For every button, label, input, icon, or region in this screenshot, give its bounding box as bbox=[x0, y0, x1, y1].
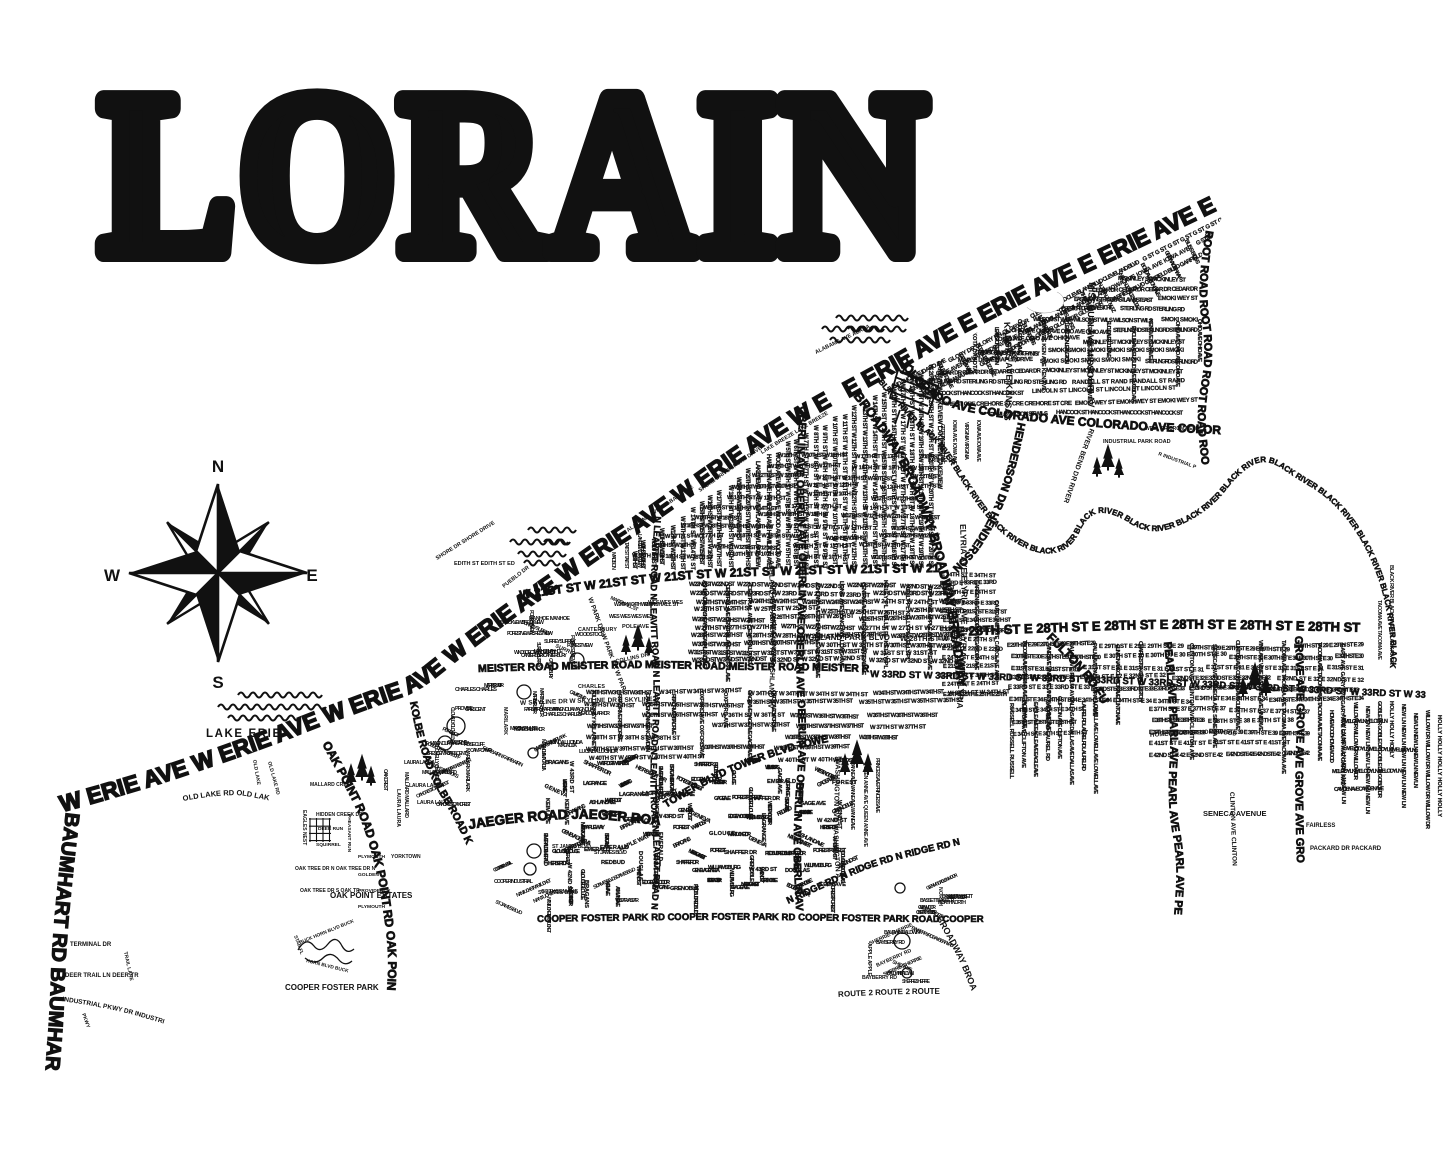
svg-text:RESERVE CT: RESERVE CT bbox=[564, 847, 570, 866]
svg-text:HOMEWOOD HOMEWOOD: HOMEWOOD HOMEWOOD bbox=[1328, 710, 1334, 763]
svg-text:LAURA LAURA: LAURA LAURA bbox=[409, 783, 444, 789]
svg-text:W 17TH ST W 17TH ST: W 17TH ST W 17TH ST bbox=[793, 543, 853, 550]
svg-text:W 12TH ST W 12TH ST: W 12TH ST W 12TH ST bbox=[807, 482, 860, 489]
svg-text:LAURA LAURA: LAURA LAURA bbox=[417, 800, 452, 806]
svg-text:EAGLES NEST: EAGLES NEST bbox=[301, 810, 307, 845]
svg-text:SENECA AVE SENECA AVE SENECA A: SENECA AVE SENECA AVE SENECA AVE bbox=[1211, 644, 1217, 748]
svg-text:ASHLAND AVE: ASHLAND AVE bbox=[798, 810, 813, 816]
svg-text:MARTINS RUN DR: MARTINS RUN DR bbox=[531, 691, 537, 714]
svg-text:KEIM AVE: KEIM AVE bbox=[544, 798, 550, 824]
svg-text:W 43RD ST: W 43RD ST bbox=[657, 814, 684, 820]
svg-text:NORTH: NORTH bbox=[937, 887, 943, 906]
svg-text:E 34TH ST E 34TH ST: E 34TH ST E 34TH ST bbox=[940, 673, 998, 679]
svg-text:LAURA LAURA: LAURA LAURA bbox=[395, 789, 401, 827]
svg-text:ASHLAND AVE ASHLAND AVE ASHLAN: ASHLAND AVE ASHLAND AVE ASHLAND AVE bbox=[701, 580, 707, 668]
svg-text:W ANNE AVE W ANNE AVE W ANNE A: W ANNE AVE W ANNE AVE W ANNE AVE bbox=[849, 760, 855, 830]
svg-text:ST JAMES BLVD: ST JAMES BLVD bbox=[538, 890, 578, 896]
svg-text:LEXINGTON LEXINGTON: LEXINGTON LEXINGTON bbox=[1063, 323, 1069, 364]
svg-text:WESTWOOD DR: WESTWOOD DR bbox=[745, 758, 761, 764]
svg-text:S: S bbox=[212, 673, 223, 692]
svg-text:E 21ST E 21ST E 21ST: E 21ST E 21ST E 21ST bbox=[943, 663, 998, 670]
svg-text:KILLARNEY KILLARNEY: KILLARNEY KILLARNEY bbox=[590, 691, 596, 749]
svg-text:EDGEWOOD DR: EDGEWOOD DR bbox=[707, 878, 723, 884]
svg-text:SHAFFER DR: SHAFFER DR bbox=[676, 860, 700, 866]
svg-text:SHAFFER DR: SHAFFER DR bbox=[748, 796, 781, 802]
svg-text:RUSSELL RUSSELL RUSSELL: RUSSELL RUSSELL RUSSELL bbox=[1008, 703, 1014, 780]
svg-text:LONG AVE LONG AVE LONG AVE: LONG AVE LONG AVE LONG AVE bbox=[838, 581, 844, 668]
svg-text:BRAGANS: BRAGANS bbox=[545, 760, 569, 766]
svg-text:LUCINDA LUCINDA: LUCINDA LUCINDA bbox=[546, 740, 583, 746]
svg-text:EASTLAWN ST EAST EASTLAWN ST E: EASTLAWN ST EAST EASTLAWN ST EAST bbox=[1074, 297, 1153, 304]
svg-text:BRIDGE DR: BRIDGE DR bbox=[928, 458, 956, 464]
svg-text:KELLY PL KELLY PL KELLY PL: KELLY PL KELLY PL KELLY PL bbox=[882, 580, 888, 669]
svg-text:W 10TH ST W 10TH ST: W 10TH ST W 10TH ST bbox=[891, 526, 937, 533]
svg-text:LAURA LAURA: LAURA LAURA bbox=[404, 760, 435, 766]
svg-text:CHARLES: CHARLES bbox=[578, 684, 605, 690]
svg-text:LAKE ERIE: LAKE ERIE bbox=[206, 728, 282, 740]
svg-text:BLACK RIVER BLACK RIVER BLACK: BLACK RIVER BLACK RIVER BLACK RIVER bbox=[1388, 565, 1394, 665]
svg-text:MARILARK: MARILARK bbox=[502, 707, 508, 735]
svg-text:W 38TH ST W 38TH ST W 38TH ST: W 38TH ST W 38TH ST W 38TH ST bbox=[785, 735, 851, 741]
svg-text:TACOMA AVE TACOMA AVE TACOMA A: TACOMA AVE TACOMA AVE TACOMA AVE TACOMA … bbox=[1316, 642, 1322, 761]
svg-text:E 42ND ST E 42 E 42ND ST E 42: E 42ND ST E 42 E 42ND ST E 42 bbox=[1149, 753, 1224, 759]
svg-text:OAK TREE DR S OAK TR: OAK TREE DR S OAK TR bbox=[300, 888, 360, 894]
svg-text:W 12TH ST W 12TH ST W 12TH ST: W 12TH ST W 12TH ST W 12TH ST bbox=[879, 533, 941, 540]
svg-text:FOREST FOREST: FOREST FOREST bbox=[829, 883, 835, 913]
svg-text:NEW LN NEW LN NEW LN NEW LN NE: NEW LN NEW LN NEW LN NEW LN NEW LN bbox=[1400, 704, 1406, 808]
svg-text:E 24TH ST E 24TH ST: E 24TH ST E 24TH ST bbox=[942, 655, 999, 662]
svg-text:WES WES WES WES: WES WES WES WES bbox=[609, 614, 654, 620]
svg-text:VASSAR VASSAR: VASSAR VASSAR bbox=[615, 898, 639, 904]
svg-text:TAIT ST TAIT ST: TAIT ST TAIT ST bbox=[623, 542, 629, 570]
svg-text:SHERRIE SHERRIE: SHERRIE SHERRIE bbox=[902, 979, 931, 985]
svg-text:CLIFTON AVE CLIFTON AVE: CLIFTON AVE CLIFTON AVE bbox=[1056, 696, 1062, 759]
svg-text:W 18TH ST W 18TH ST: W 18TH ST W 18TH ST bbox=[694, 515, 741, 522]
svg-text:W 12TH ST W 12TH ST: W 12TH ST W 12TH ST bbox=[752, 473, 805, 479]
svg-text:LUCINDA LUCINDA: LUCINDA LUCINDA bbox=[579, 749, 618, 755]
svg-text:W 10TH ST W 10TH ST: W 10TH ST W 10TH ST bbox=[793, 554, 851, 561]
svg-text:APPLE APPLE: APPLE APPLE bbox=[866, 943, 872, 977]
svg-text:E 33RD ST E 33 E 33RD ST E 33: E 33RD ST E 33 E 33RD ST E 33 bbox=[1189, 685, 1258, 692]
svg-text:W 17TH ST W 17TH ST W 17TH ST: W 17TH ST W 17TH ST W 17TH ST bbox=[769, 463, 842, 470]
svg-text:W 30TH ST W 30TH ST W 30TH ST: W 30TH ST W 30TH ST W 30TH ST bbox=[744, 639, 818, 647]
svg-text:MARILARK MARILARK: MARILARK MARILARK bbox=[464, 748, 470, 792]
svg-text:MEADOWLARK DR: MEADOWLARK DR bbox=[514, 727, 545, 733]
svg-text:SENECA AVENUE: SENECA AVENUE bbox=[1203, 809, 1266, 818]
svg-text:VINE AVE VINE AVE VINE AVE VIN: VINE AVE VINE AVE VINE AVE VINE AVE bbox=[1257, 640, 1263, 731]
svg-text:W 43RD ST: W 43RD ST bbox=[568, 761, 574, 793]
svg-text:PROVIDENCE: PROVIDENCE bbox=[358, 888, 391, 894]
svg-text:SQUIRREL: SQUIRREL bbox=[316, 842, 341, 848]
svg-text:GRENOBLE: GRENOBLE bbox=[761, 878, 778, 884]
svg-text:FORESTVIEW: FORESTVIEW bbox=[567, 643, 594, 649]
svg-text:MAPLE WAY: MAPLE WAY bbox=[582, 825, 605, 831]
svg-text:W 17TH ST W 17TH ST: W 17TH ST W 17TH ST bbox=[785, 504, 843, 510]
svg-text:W 38TH ST W 38TH ST: W 38TH ST W 38TH ST bbox=[859, 735, 898, 741]
svg-text:CENTRAL AVE CENTRAL AVE: CENTRAL AVE CENTRAL AVE bbox=[746, 585, 752, 663]
svg-text:IOWA AVE IOWA AVE: IOWA AVE IOWA AVE bbox=[975, 420, 981, 463]
svg-text:HOLLY HOLLY HOLLY HOLLY HOLLY: HOLLY HOLLY HOLLY HOLLY HOLLY bbox=[1436, 715, 1442, 817]
svg-text:CHARLESTON CHARLESTON: CHARLESTON CHARLESTON bbox=[1137, 641, 1143, 702]
svg-text:TERMINAL DR: TERMINAL DR bbox=[70, 942, 112, 948]
svg-text:INDUSTRIAL PARK ROAD: INDUSTRIAL PARK ROAD bbox=[1103, 439, 1171, 445]
svg-text:POLE AVE: POLE AVE bbox=[622, 624, 650, 630]
svg-text:REDBUD: REDBUD bbox=[712, 762, 718, 778]
svg-text:KEN AVE KEN AVE: KEN AVE KEN AVE bbox=[1147, 319, 1153, 359]
svg-text:E 32ND ST E 32 E 32ND ST E 32: E 32ND ST E 32 E 32ND ST E 32 E 32ND ST … bbox=[1172, 675, 1272, 682]
svg-text:OAKCREST: OAKCREST bbox=[382, 769, 388, 792]
svg-text:ST JAMES BLVD: ST JAMES BLVD bbox=[552, 844, 591, 850]
svg-text:E 41ST ST E 41ST ST: E 41ST ST E 41ST ST bbox=[1149, 741, 1206, 747]
svg-text:OHIO AVE OHIO AVE: OHIO AVE OHIO AVE bbox=[1016, 319, 1022, 354]
svg-text:GOLDEN: GOLDEN bbox=[358, 872, 379, 878]
svg-text:E: E bbox=[306, 566, 317, 585]
svg-text:W 10TH ST W 10TH ST: W 10TH ST W 10TH ST bbox=[807, 491, 859, 498]
svg-text:STERLING RD STERLING RD STERLI: STERLING RD STERLING RD STERLING RD bbox=[1113, 328, 1199, 334]
svg-text:CANTERBURY: CANTERBURY bbox=[547, 658, 553, 679]
svg-text:FAIRLESS: FAIRLESS bbox=[1306, 823, 1335, 829]
svg-text:E 24TH ST E 24TH ST: E 24TH ST E 24TH ST bbox=[943, 590, 996, 596]
svg-text:ST JAMES BLVD: ST JAMES BLVD bbox=[594, 850, 627, 856]
svg-text:W 43RD ST: W 43RD ST bbox=[605, 798, 622, 804]
svg-text:E 42ND ST E 42 E 42ND ST E 42: E 42ND ST E 42 E 42ND ST E 42 bbox=[1226, 752, 1282, 758]
svg-text:LEXINGTON LEXINGTON: LEXINGTON LEXINGTON bbox=[993, 327, 999, 365]
svg-text:W 10TH ST W 10TH ST W 10TH ST: W 10TH ST W 10TH ST W 10TH ST bbox=[778, 453, 849, 459]
svg-text:TACOMA AVE TACOMA AVE TACOMA A: TACOMA AVE TACOMA AVE TACOMA AVE TACOMA … bbox=[1280, 640, 1286, 774]
svg-text:YORKTOWN: YORKTOWN bbox=[391, 854, 421, 860]
svg-text:MALLARD MALLARD: MALLARD MALLARD bbox=[422, 770, 457, 776]
svg-text:REDBUD REDBUD: REDBUD REDBUD bbox=[692, 884, 698, 914]
svg-text:W 12TH ST W 12TH ST W 12TH ST: W 12TH ST W 12TH ST W 12TH ST bbox=[841, 513, 910, 520]
svg-text:W 18TH ST W 18TH ST W 18TH ST: W 18TH ST W 18TH ST W 18TH ST bbox=[758, 512, 830, 518]
svg-text:LOWELL AVE LOWELL AVE LOWELL A: LOWELL AVE LOWELL AVE LOWELL AVE bbox=[1092, 701, 1098, 794]
svg-text:OHIO AVE OHIO AVE: OHIO AVE OHIO AVE bbox=[1196, 319, 1202, 362]
svg-text:W 18TH ST W 18TH ST: W 18TH ST W 18TH ST bbox=[859, 542, 911, 549]
svg-text:PHEASANT RUN: PHEASANT RUN bbox=[346, 814, 352, 853]
svg-text:RITA DRIVE RITA DRIVE: RITA DRIVE RITA DRIVE bbox=[670, 694, 676, 735]
svg-text:WELL DR CROMWELL: WELL DR CROMWELL bbox=[1145, 426, 1199, 432]
svg-text:W 12TH ST W 12TH ST: W 12TH ST W 12TH ST bbox=[871, 496, 918, 502]
svg-text:LAGRANGE: LAGRANGE bbox=[583, 781, 607, 787]
svg-text:MALLARD MALLARD: MALLARD MALLARD bbox=[403, 772, 409, 818]
svg-text:W 30TH ST W 30TH ST: W 30TH ST W 30TH ST bbox=[692, 641, 741, 648]
svg-text:MELODY LN MELODY LN: MELODY LN MELODY LN bbox=[1344, 719, 1388, 725]
svg-text:PRINCESS AVE PRINCESS AVE: PRINCESS AVE PRINCESS AVE bbox=[874, 758, 880, 813]
svg-text:CHARLES CHARLES: CHARLES CHARLES bbox=[543, 712, 582, 718]
svg-text:WILLIAMSBURG: WILLIAMSBURG bbox=[708, 865, 741, 871]
svg-text:E 33RD E 33RD E 33RD: E 33RD E 33RD E 33RD bbox=[942, 600, 999, 607]
svg-text:W 37TH ST W 37TH ST: W 37TH ST W 37TH ST bbox=[870, 724, 926, 731]
svg-text:ASHLAND AVE ASHLAND AVE ASHLAN: ASHLAND AVE ASHLAND AVE ASHLAND AVE bbox=[814, 582, 820, 678]
svg-text:EUCLID AVE EUCLID AVE: EUCLID AVE EUCLID AVE bbox=[1105, 321, 1111, 358]
svg-text:GLOUCE: GLOUCE bbox=[730, 770, 736, 785]
svg-text:PALM AVE PALM AVE: PALM AVE PALM AVE bbox=[1068, 642, 1074, 701]
svg-text:E 35TH ST E 35TH ST E 35TH ST: E 35TH ST E 35TH ST E 35TH ST bbox=[1012, 720, 1078, 726]
svg-text:MAGNOLIA MAGNOLIA: MAGNOLIA MAGNOLIA bbox=[430, 741, 470, 747]
svg-text:WILLIAMSBURG: WILLIAMSBURG bbox=[728, 869, 734, 897]
svg-text:E 32ND ST E 32 E 32ND ST E 32: E 32ND ST E 32 E 32ND ST E 32 bbox=[1009, 675, 1076, 681]
svg-text:LAGRANGE: LAGRANGE bbox=[784, 778, 790, 797]
svg-text:W 18TH ST W 18TH ST W 18TH ST: W 18TH ST W 18TH ST W 18TH ST bbox=[852, 465, 941, 472]
svg-text:CLINTON AVE CLINTON AVE CLINTO: CLINTON AVE CLINTON AVE CLINTON AVE bbox=[1114, 644, 1120, 725]
svg-text:GAGE AVE GAGE AVE GAGE AVE: GAGE AVE GAGE AVE GAGE AVE bbox=[746, 690, 752, 757]
svg-text:MARSHALL ST: MARSHALL ST bbox=[644, 602, 680, 608]
svg-text:HIDDEN CREEK DR: HIDDEN CREEK DR bbox=[316, 812, 363, 818]
svg-text:EMERALD: EMERALD bbox=[767, 779, 796, 785]
svg-text:LAKEVIEW LAKEVIEW: LAKEVIEW LAKEVIEW bbox=[636, 534, 642, 569]
svg-text:W 17TH ST W 17TH ST: W 17TH ST W 17TH ST bbox=[665, 533, 725, 540]
svg-text:OXFORD AVE: OXFORD AVE bbox=[722, 692, 728, 728]
svg-text:HERBERT DR: HERBERT DR bbox=[712, 780, 728, 786]
svg-text:MELODY LN MELODY LN MELODY LN: MELODY LN MELODY LN MELODY LN bbox=[1332, 769, 1402, 775]
svg-text:MARTINS RUN DR: MARTINS RUN DR bbox=[484, 683, 504, 689]
svg-text:MADISON: MADISON bbox=[610, 552, 616, 570]
svg-text:GAGE AVE: GAGE AVE bbox=[800, 801, 826, 807]
svg-text:CRESCENT: CRESCENT bbox=[465, 707, 487, 713]
svg-text:W 34TH ST W 34TH ST W 34TH ST: W 34TH ST W 34TH ST W 34TH ST W 34TH ST bbox=[749, 691, 868, 698]
svg-text:CENTRAL AVE CENTRAL AVE CENTRA: CENTRAL AVE CENTRAL AVE CENTRAL AVE bbox=[724, 584, 730, 682]
svg-text:EUCLID AVE EUCLID AVE EUCLID A: EUCLID AVE EUCLID AVE EUCLID AVE bbox=[1130, 326, 1136, 404]
svg-text:CAMDEN CAMDEN CAMDEN: CAMDEN CAMDEN CAMDEN bbox=[644, 693, 650, 752]
svg-text:REDBUD: REDBUD bbox=[601, 860, 625, 866]
svg-text:MARTINS RUN DR: MARTINS RUN DR bbox=[538, 688, 544, 717]
svg-text:W: W bbox=[104, 566, 121, 585]
svg-text:SURREY SURREY: SURREY SURREY bbox=[535, 642, 541, 668]
svg-text:MALLARD CREE: MALLARD CREE bbox=[310, 782, 351, 788]
svg-text:FORESTVIEW FORESTVIEW: FORESTVIEW FORESTVIEW bbox=[507, 631, 554, 637]
svg-text:KEN AVE KEN AVE KEN AVE: KEN AVE KEN AVE KEN AVE bbox=[1086, 323, 1092, 400]
svg-text:FOREST: FOREST bbox=[673, 825, 690, 831]
svg-text:BRAGANS: BRAGANS bbox=[583, 880, 589, 908]
svg-text:W 37TH ST W 37TH ST W 37TH ST: W 37TH ST W 37TH ST W 37TH ST bbox=[796, 724, 864, 730]
svg-text:CENTRAL AVE CENTRAL AVE CENTRA: CENTRAL AVE CENTRAL AVE CENTRAL AVE bbox=[860, 582, 866, 675]
svg-text:W 17TH ST W 17TH ST: W 17TH ST W 17TH ST bbox=[855, 454, 908, 460]
svg-text:N: N bbox=[212, 457, 224, 476]
svg-text:EDITH ST EDITH ST ED: EDITH ST EDITH ST ED bbox=[454, 561, 515, 567]
svg-text:PACKARD DR PACKARD: PACKARD DR PACKARD bbox=[1310, 846, 1382, 852]
svg-text:W 42ND ST: W 42ND ST bbox=[817, 818, 847, 824]
svg-text:MEADOWLARK DR: MEADOWLARK DR bbox=[578, 711, 610, 717]
svg-text:GAGE AVE: GAGE AVE bbox=[714, 796, 731, 802]
svg-text:W 14TH ST W 14TH ST: W 14TH ST W 14TH ST bbox=[727, 495, 787, 502]
svg-text:HANCOCK ST HANCOCK ST HANCOCK: HANCOCK ST HANCOCK ST HANCOCK ST HANCOCK… bbox=[1056, 410, 1183, 417]
svg-text:KEN AVE KEN AVE KEN AVE: KEN AVE KEN AVE KEN AVE bbox=[1040, 319, 1046, 391]
svg-text:WILLOW DR WILLOW DR WILLOW DR: WILLOW DR WILLOW DR WILLOW DR WILLOW DR bbox=[1424, 710, 1430, 829]
svg-text:OXFORD AVE OXFORD AVE: OXFORD AVE OXFORD AVE bbox=[770, 690, 776, 732]
svg-text:E 39TH ST E 39 E 39TH ST E 39: E 39TH ST E 39 E 39TH ST E 39 bbox=[1149, 730, 1207, 736]
svg-text:CAMDEN AVE CAMDEN AVE: CAMDEN AVE CAMDEN AVE bbox=[1334, 786, 1384, 793]
svg-text:WILLIAMSBURG: WILLIAMSBURG bbox=[804, 863, 832, 869]
svg-text:W 28TH ST W 28TH ST: W 28TH ST W 28TH ST bbox=[691, 632, 743, 639]
svg-text:W 10TH ST W 10TH ST: W 10TH ST W 10TH ST bbox=[652, 543, 698, 549]
svg-text:RITA DRIVE RITA DRIVE: RITA DRIVE RITA DRIVE bbox=[616, 694, 622, 742]
svg-text:OXFORD AVE OXFORD AVE: OXFORD AVE OXFORD AVE bbox=[698, 691, 704, 758]
svg-text:APPLE AVE APPLE AVE APPLE AVE: APPLE AVE APPLE AVE APPLE AVE bbox=[926, 585, 932, 670]
svg-text:E 41ST ST E 41ST ST E 41ST ST: E 41ST ST E 41ST ST E 41ST ST bbox=[1208, 740, 1290, 746]
svg-text:CLINTON AVE CLINTON AVE CLINTO: CLINTON AVE CLINTON AVE CLINTON AVE bbox=[1234, 640, 1240, 730]
svg-text:BRAGANS: BRAGANS bbox=[652, 885, 670, 891]
svg-text:E 42ND ST E 42: E 42ND ST E 42 bbox=[1284, 751, 1311, 757]
svg-text:NARRAGANSETT: NARRAGANSETT bbox=[741, 882, 760, 888]
svg-text:REDBUD: REDBUD bbox=[602, 811, 622, 817]
svg-text:OAK TREE DR N OAK TREE DR N: OAK TREE DR N OAK TREE DR N bbox=[295, 866, 376, 872]
svg-text:CLINTON AVE CLINTON AVE CLINTO: CLINTON AVE CLINTON AVE CLINTON AVE bbox=[1188, 643, 1194, 760]
svg-text:W 39TH ST W 39TH ST W 39TH ST: W 39TH ST W 39TH ST W 39TH ST bbox=[700, 745, 765, 751]
svg-text:LAGRANGE: LAGRANGE bbox=[561, 779, 567, 793]
svg-text:HERBERT DR: HERBERT DR bbox=[820, 825, 839, 831]
svg-text:CAROLINE AVE CAROLINE AVE: CAROLINE AVE CAROLINE AVE bbox=[993, 600, 999, 680]
svg-text:W 10TH ST W 10TH ST: W 10TH ST W 10TH ST bbox=[726, 551, 783, 558]
svg-text:W 36TH ST W 36TH ST W 36TH ST: W 36TH ST W 36TH ST W 36TH ST bbox=[642, 712, 718, 719]
svg-text:DEER RUN: DEER RUN bbox=[318, 826, 344, 832]
svg-text:W 14TH ST W 14TH ST: W 14TH ST W 14TH ST bbox=[826, 535, 868, 542]
svg-text:STERLING RD STERLING RD: STERLING RD STERLING RD bbox=[1145, 359, 1199, 366]
svg-text:LAGRANGE: LAGRANGE bbox=[760, 813, 766, 842]
svg-text:E 38TH ST E 38 E 38TH ST E 38: E 38TH ST E 38 E 38TH ST E 38 bbox=[1152, 718, 1206, 724]
svg-text:LONG AVE LONG AVE LONG AVE: LONG AVE LONG AVE LONG AVE bbox=[770, 582, 776, 664]
svg-text:ASHLAND AVE: ASHLAND AVE bbox=[671, 792, 695, 798]
svg-text:VIRGINIA VIRGINIA: VIRGINIA VIRGINIA bbox=[963, 422, 969, 460]
svg-text:NANTUCKET NANTUCKET: NANTUCKET NANTUCKET bbox=[545, 897, 551, 934]
svg-text:W 36TH ST W 36TH ST W 36TH ST: W 36TH ST W 36TH ST W 36TH ST bbox=[867, 713, 938, 719]
svg-text:EMOKI WEY ST: EMOKI WEY ST bbox=[1158, 296, 1198, 302]
svg-text:TACOMA AVE TACOMA AVE: TACOMA AVE TACOMA AVE bbox=[1376, 600, 1382, 660]
svg-text:W 38TH ST W 38TH ST W 38TH ST: W 38TH ST W 38TH ST W 38TH ST bbox=[586, 735, 680, 742]
svg-text:W 12TH ST: W 12TH ST bbox=[915, 515, 941, 521]
svg-text:COOPER INDUSTRIAL: COOPER INDUSTRIAL bbox=[494, 879, 534, 885]
svg-text:CAMP CAMP: CAMP CAMP bbox=[470, 748, 492, 754]
svg-text:W 12TH ST: W 12TH ST bbox=[913, 474, 941, 480]
svg-text:GARDEN AVE GARDEN AVE GARDEN A: GARDEN AVE GARDEN AVE GARDEN AVE bbox=[973, 580, 979, 670]
svg-text:PLYMOUTH: PLYMOUTH bbox=[358, 904, 385, 910]
svg-text:W 10TH ST W 10TH ST W 10TH ST: W 10TH ST W 10TH ST W 10TH ST bbox=[871, 555, 941, 561]
svg-text:QUEEN ANNE AVE QUEEN ANNE AVE: QUEEN ANNE AVE QUEEN ANNE AVE bbox=[862, 762, 868, 847]
svg-text:KELLY PL KELLY PL KELLY PL: KELLY PL KELLY PL KELLY PL bbox=[904, 585, 910, 661]
svg-text:OHIO AVE OHIO AVE OHIO AVE: OHIO AVE OHIO AVE OHIO AVE bbox=[1174, 321, 1180, 387]
svg-text:PLYMOUTH: PLYMOUTH bbox=[358, 854, 385, 860]
svg-text:COOPER FOSTER PARK: COOPER FOSTER PARK bbox=[285, 983, 379, 992]
svg-text:W 18TH ST W 18TH ST W 18TH ST: W 18TH ST W 18TH ST W 18TH ST bbox=[733, 533, 818, 540]
svg-text:SHAFFER DR: SHAFFER DR bbox=[694, 762, 715, 768]
svg-text:W 42ND ST: W 42ND ST bbox=[635, 866, 641, 886]
svg-text:LORAIN: LORAIN bbox=[100, 46, 930, 303]
